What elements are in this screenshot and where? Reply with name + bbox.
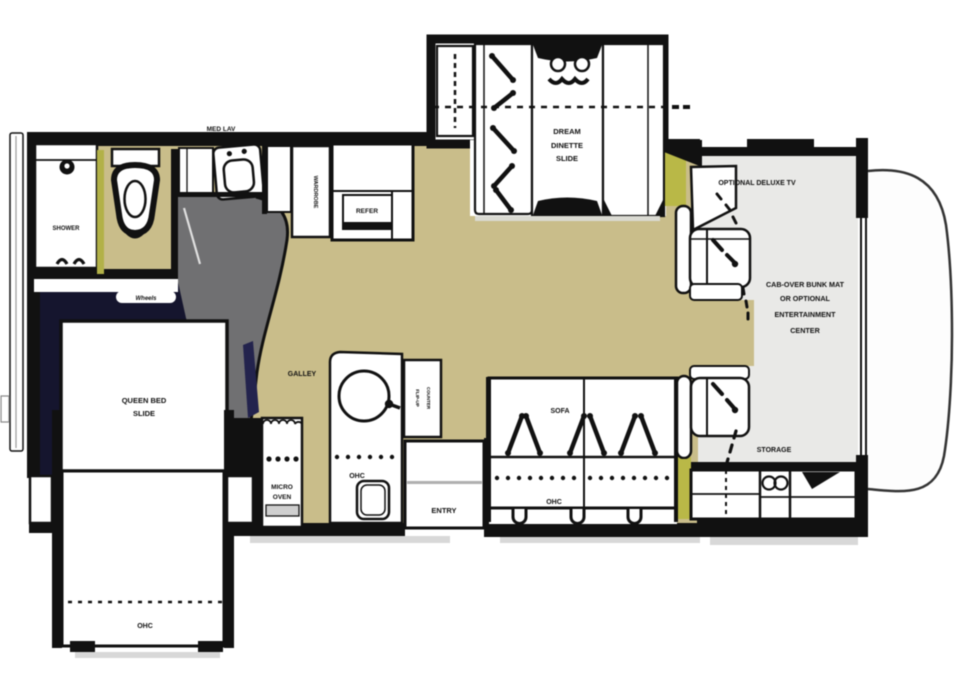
svg-text:SHOWER: SHOWER: [53, 226, 81, 232]
svg-text:CAB-OVER BUNK MAT: CAB-OVER BUNK MAT: [766, 280, 845, 289]
svg-text:DINETTE: DINETTE: [551, 141, 583, 150]
svg-text:WARDROBE: WARDROBE: [312, 176, 318, 209]
svg-text:SLIDE: SLIDE: [133, 409, 155, 418]
svg-text:OPTIONAL DELUXE TV: OPTIONAL DELUXE TV: [718, 180, 796, 187]
svg-text:STORAGE: STORAGE: [757, 447, 792, 454]
svg-text:OR OPTIONAL: OR OPTIONAL: [780, 294, 831, 303]
svg-text:OVEN: OVEN: [273, 494, 292, 501]
svg-text:REFER: REFER: [356, 208, 378, 215]
svg-text:ENTRY: ENTRY: [431, 506, 456, 515]
svg-text:ENTERTAINMENT: ENTERTAINMENT: [775, 310, 837, 319]
svg-text:SOFA: SOFA: [550, 408, 569, 415]
svg-text:SLIDE: SLIDE: [556, 154, 578, 163]
svg-text:CENTER: CENTER: [790, 326, 820, 335]
svg-text:OHC: OHC: [137, 623, 153, 630]
svg-text:MICRO: MICRO: [271, 484, 293, 491]
svg-text:MED LAV: MED LAV: [207, 126, 236, 133]
svg-text:FLIP-UP: FLIP-UP: [415, 389, 420, 407]
svg-text:Wheels: Wheels: [135, 296, 157, 302]
svg-text:DREAM: DREAM: [553, 127, 581, 136]
svg-text:OHC: OHC: [349, 473, 365, 480]
svg-text:OHC: OHC: [546, 499, 562, 506]
svg-text:QUEEN BED: QUEEN BED: [122, 396, 167, 405]
svg-text:COUNTER: COUNTER: [426, 387, 431, 410]
svg-text:GALLEY: GALLEY: [288, 371, 317, 378]
